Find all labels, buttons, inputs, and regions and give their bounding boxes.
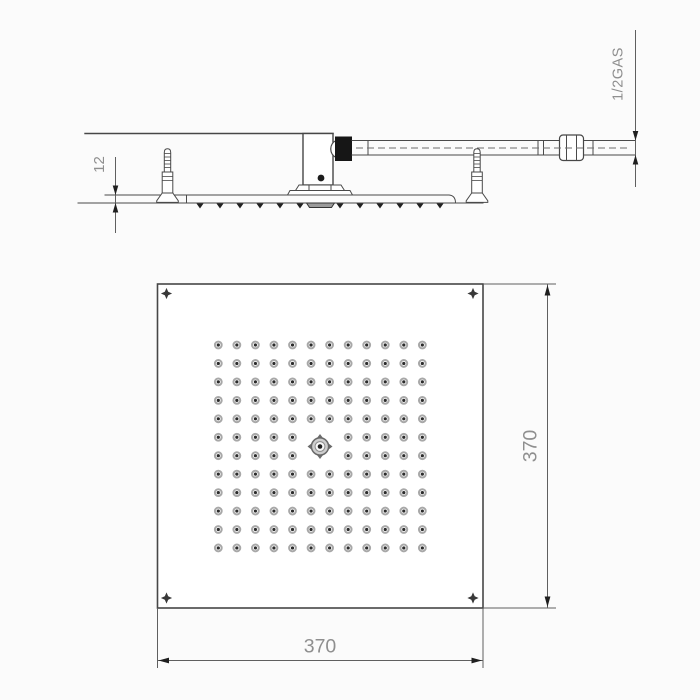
nozzle-dot-center (217, 343, 220, 346)
nozzle-dot-center (384, 436, 387, 439)
nozzle-dot-center (402, 380, 405, 383)
anchor-screw (466, 149, 488, 203)
nozzle-dot-center (254, 417, 257, 420)
nozzle-dot-center (217, 436, 220, 439)
nozzle-dot-center (217, 528, 220, 531)
side-view: 12 1/2GAS (78, 30, 638, 233)
nozzle-dot-center (421, 399, 424, 402)
nozzle-dot-center (217, 491, 220, 494)
nozzle-dot-center (347, 399, 350, 402)
nozzle-tooth (437, 204, 444, 209)
nozzle-dot-center (217, 380, 220, 383)
nozzle-dot-center (235, 473, 238, 476)
nozzle-dot-center (235, 491, 238, 494)
nozzle-dot-center (272, 454, 275, 457)
nozzle-dot-center (328, 509, 331, 512)
nozzle-dot-center (309, 343, 312, 346)
nozzle-dot-center (254, 436, 257, 439)
arrowhead-left (159, 658, 170, 664)
nozzle-dot-center (291, 473, 294, 476)
anchor-flare (157, 193, 179, 202)
nozzle-dot-center (235, 362, 238, 365)
nozzle-tooth (337, 204, 344, 209)
nozzle-dot-center (421, 509, 424, 512)
plate-right-shoulder (449, 195, 456, 203)
nozzle-dot-center (384, 399, 387, 402)
nozzle-dot-center (272, 343, 275, 346)
nozzle-dot-center (402, 454, 405, 457)
arrowhead-down (113, 186, 119, 196)
nozzle-dot-center (384, 509, 387, 512)
nozzle-dot-center (402, 546, 405, 549)
nozzle-dot-center (328, 546, 331, 549)
nozzle-tooth (217, 204, 224, 209)
nozzle-dot-center (309, 528, 312, 531)
nozzle-dot-center (254, 399, 257, 402)
nozzle-dot-center (291, 509, 294, 512)
nozzle-dot-center (254, 491, 257, 494)
hub-center-dot (318, 444, 323, 449)
nozzle-dot-center (272, 491, 275, 494)
nozzle-dot-center (421, 417, 424, 420)
nozzle-tooth (357, 204, 364, 209)
nozzle-dot-center (309, 380, 312, 383)
nozzle-dot-center (365, 399, 368, 402)
nozzle-dot-center (272, 473, 275, 476)
nozzle-dot-center (328, 362, 331, 365)
nozzle-dot-center (235, 436, 238, 439)
nozzle-dot-center (384, 362, 387, 365)
nozzle-dot-center (384, 380, 387, 383)
nozzle-dot-center (347, 528, 350, 531)
nozzle-dot-center (309, 473, 312, 476)
arrowhead-up (545, 285, 551, 296)
nozzle-dot-center (328, 343, 331, 346)
nozzle-dot-center (421, 343, 424, 346)
nozzle-dot-center (421, 362, 424, 365)
pipe-connector (335, 137, 352, 162)
technical-drawing: 12 1/2GAS (0, 0, 700, 700)
arrowhead-down (633, 131, 639, 141)
nozzle-dot-center (309, 417, 312, 420)
nozzle-dot-center (254, 343, 257, 346)
nozzle-dot-center (421, 454, 424, 457)
nozzle-dot-center (235, 528, 238, 531)
nozzle-dot-center (402, 528, 405, 531)
nozzle-dot-center (235, 399, 238, 402)
nozzle-dot-center (309, 509, 312, 512)
nozzle-dot-center (365, 473, 368, 476)
nozzle-dot-center (291, 528, 294, 531)
nozzle-dot-center (365, 528, 368, 531)
arrowhead-up (113, 203, 119, 213)
nozzle-dot-center (365, 509, 368, 512)
nozzle-dot-center (235, 380, 238, 383)
nozzle-dot-center (384, 528, 387, 531)
nozzle-tooth (397, 204, 404, 209)
center-outlet-bump (307, 203, 335, 208)
nozzle-dot-center (254, 454, 257, 457)
nozzle-dot-center (347, 436, 350, 439)
nozzle-dot-center (309, 362, 312, 365)
nozzle-dot-center (272, 362, 275, 365)
nozzle-dot-center (402, 417, 405, 420)
nozzle-dot-center (402, 436, 405, 439)
nozzle-tooth (237, 204, 244, 209)
anchor-sleeve (472, 172, 483, 193)
nozzle-dot-center (217, 417, 220, 420)
nozzle-dot-center (217, 473, 220, 476)
nozzle-dot-center (254, 362, 257, 365)
nozzle-dot-center (291, 380, 294, 383)
nozzle-dot-center (365, 546, 368, 549)
nozzle-dot-center (254, 380, 257, 383)
nozzle-tooth (297, 204, 304, 209)
nozzle-dot-center (365, 491, 368, 494)
nozzle-dot-center (235, 509, 238, 512)
flange-lower-step (288, 191, 353, 196)
nozzle-dot-center (254, 473, 257, 476)
nozzle-dot-center (384, 417, 387, 420)
nozzle-dot-center (421, 528, 424, 531)
nozzle-dot-center (365, 362, 368, 365)
nozzle-dot-center (217, 399, 220, 402)
nozzle-dot-center (235, 343, 238, 346)
nozzle-dot-center (309, 491, 312, 494)
nozzle-dot-center (365, 417, 368, 420)
nozzle-dot-center (384, 343, 387, 346)
nozzle-dot-center (217, 546, 220, 549)
nozzle-dot-center (402, 491, 405, 494)
nozzle-tooth (377, 204, 384, 209)
connection-dimension: 1/2GAS (611, 30, 639, 187)
nozzle-dot-center (272, 436, 275, 439)
nozzle-dot-center (402, 509, 405, 512)
nozzle-dot-center (421, 436, 424, 439)
nozzle-dot-center (347, 491, 350, 494)
nozzle-dot-center (347, 473, 350, 476)
nozzle-dot-center (402, 399, 405, 402)
nozzle-dot-center (384, 546, 387, 549)
nozzle-dot-center (291, 362, 294, 365)
technical-drawing-page: 12 1/2GAS (0, 0, 700, 700)
nozzle-dot-center (272, 528, 275, 531)
arrowhead-up (633, 155, 639, 165)
nozzle-dot-center (291, 491, 294, 494)
nozzle-dot-center (217, 509, 220, 512)
nozzle-dot-center (365, 380, 368, 383)
mounting-flange (288, 185, 353, 195)
nozzle-dot-center (347, 454, 350, 457)
nozzle-dot-center (328, 380, 331, 383)
anchor-flare (466, 193, 488, 202)
nozzle-dot-center (309, 546, 312, 549)
nozzle-dot-center (402, 362, 405, 365)
nozzle-dot-center (291, 454, 294, 457)
supply-pipe (352, 135, 635, 161)
nozzle-dot-center (402, 473, 405, 476)
nozzle-dot-center (384, 491, 387, 494)
nozzle-dot-center (328, 417, 331, 420)
flange-upper-step (296, 185, 345, 191)
anchor-screw (157, 149, 179, 203)
nozzle-dot-center (291, 436, 294, 439)
nozzle-dot-center (328, 473, 331, 476)
height-label: 370 (520, 430, 542, 463)
pivot-dot (318, 175, 325, 182)
nozzle-dot-center (421, 473, 424, 476)
nozzle-dot-center (347, 509, 350, 512)
nozzle-dot-center (217, 362, 220, 365)
nozzle-dot-center (365, 343, 368, 346)
nozzle-dot-center (328, 528, 331, 531)
height-dimension: 370 (483, 284, 556, 608)
nozzle-dot-center (384, 454, 387, 457)
nozzle-dot-center (291, 546, 294, 549)
nozzle-dot-center (421, 546, 424, 549)
nozzle-dot-center (254, 546, 257, 549)
nozzle-dot-center (254, 528, 257, 531)
nozzle-dot-center (272, 380, 275, 383)
connection-label: 1/2GAS (611, 47, 627, 101)
nozzle-dot-center (328, 399, 331, 402)
nozzle-dot-center (384, 473, 387, 476)
nozzle-dot-center (235, 546, 238, 549)
width-dimension: 370 (158, 608, 484, 668)
nozzle-dot-center (291, 343, 294, 346)
nozzle-tooth (257, 204, 264, 209)
width-label: 370 (304, 636, 337, 658)
anchor-sleeve (162, 172, 173, 193)
nozzle-dot-center (254, 509, 257, 512)
nozzle-dot-center (347, 343, 350, 346)
nozzle-dot-center (235, 417, 238, 420)
nozzle-dot-center (272, 417, 275, 420)
nozzle-dot-center (291, 399, 294, 402)
arrowhead-down (545, 597, 551, 608)
nozzle-dot-center (272, 509, 275, 512)
nozzle-dot-center (328, 491, 331, 494)
nozzle-dot-center (347, 362, 350, 365)
thickness-label: 12 (91, 156, 108, 173)
nozzle-dot-center (235, 454, 238, 457)
nozzle-tooth (197, 204, 204, 209)
nozzle-dot-center (347, 546, 350, 549)
nozzle-dot-center (421, 380, 424, 383)
bottom-view: 370 370 (158, 284, 557, 668)
nozzle-dot-center (217, 454, 220, 457)
nozzle-tooth (417, 204, 424, 209)
plate-profile (78, 195, 483, 203)
nozzle-dot-center (421, 491, 424, 494)
nozzle-dot-center (272, 546, 275, 549)
nozzle-dot-center (309, 399, 312, 402)
nozzle-tooth (277, 204, 284, 209)
nozzle-dot-center (365, 454, 368, 457)
nozzle-dot-center (347, 380, 350, 383)
nozzle-dot-center (272, 399, 275, 402)
nozzle-dot-center (365, 436, 368, 439)
arrowhead-right (472, 658, 483, 664)
nozzle-dot-center (347, 417, 350, 420)
nozzle-dot-center (402, 343, 405, 346)
nozzle-dot-center (291, 417, 294, 420)
